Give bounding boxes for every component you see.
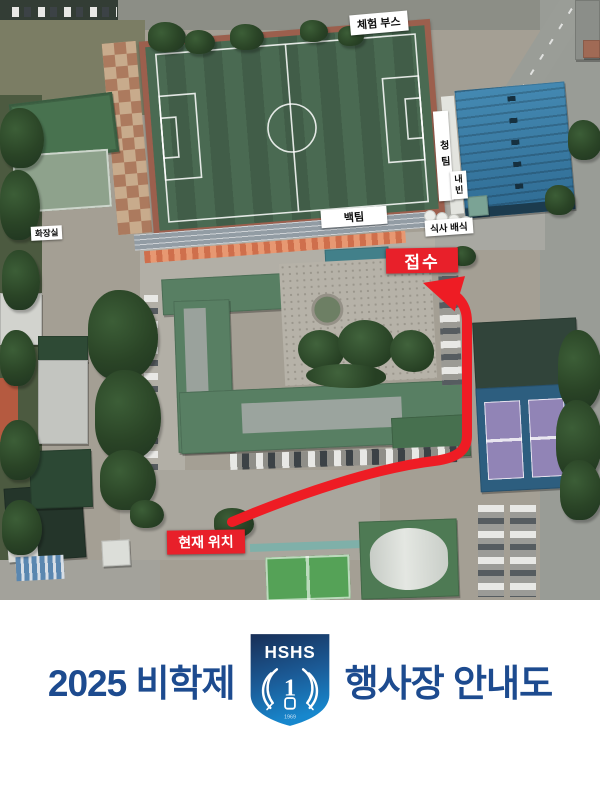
event-guide-poster: 체험 부스 청팀 내빈 백팀 식사 배식 접수 화장실 현재 위치 2025 비…: [0, 0, 600, 800]
route-path: [0, 0, 600, 600]
emblem-initials: HSHS: [264, 642, 315, 662]
poster-footer: 2025 비학제 HSHS: [0, 600, 600, 800]
title-row: 2025 비학제 HSHS: [0, 632, 600, 728]
title-left: 2025 비학제: [48, 653, 235, 707]
campus-map: 체험 부스 청팀 내빈 백팀 식사 배식 접수 화장실 현재 위치: [0, 0, 600, 600]
school-emblem: HSHS 1 1969: [249, 632, 331, 728]
label-meal-service: 식사 배식: [424, 217, 473, 236]
emblem-year: 1969: [284, 715, 296, 721]
label-restroom: 화장실: [31, 225, 63, 241]
title-right: 행사장 안내도: [345, 653, 553, 707]
label-vip: 내빈: [450, 170, 468, 199]
label-current-location: 현재 위치: [167, 529, 245, 554]
label-reception: 접수: [386, 247, 458, 273]
